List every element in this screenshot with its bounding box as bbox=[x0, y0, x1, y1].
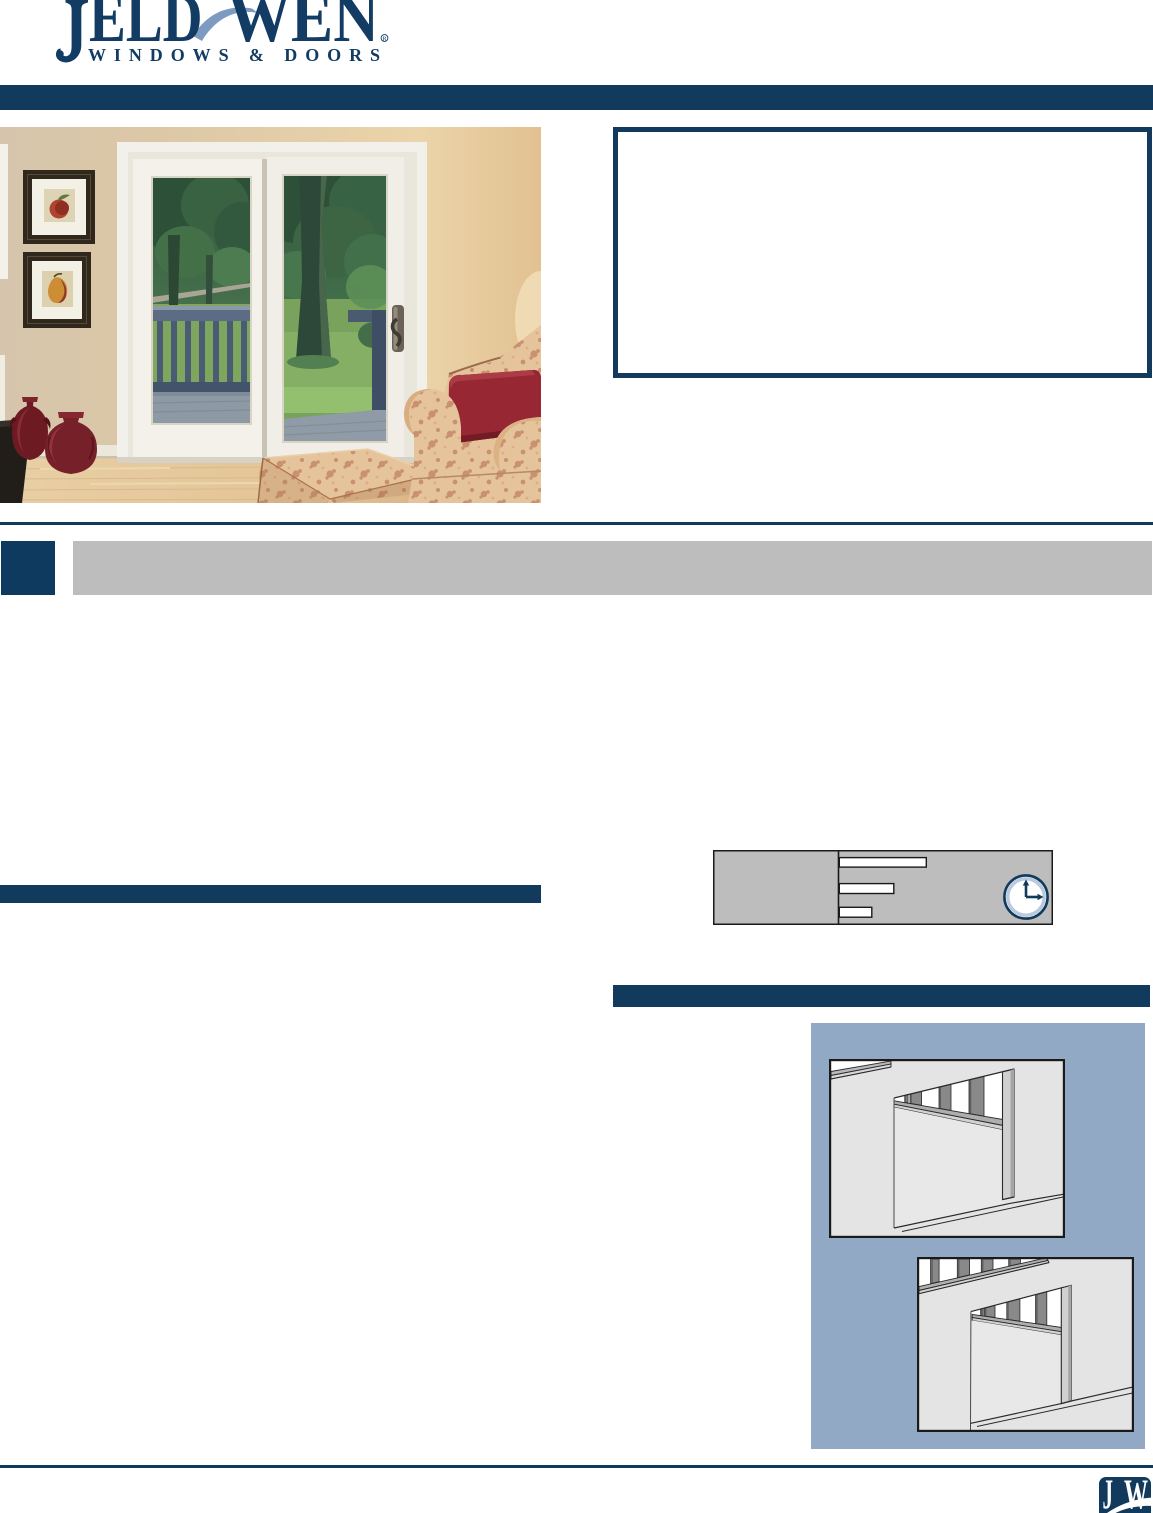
svg-text:R: R bbox=[382, 36, 387, 43]
svg-text:ELD: ELD bbox=[89, 0, 203, 57]
svg-text:J: J bbox=[1103, 1477, 1114, 1513]
